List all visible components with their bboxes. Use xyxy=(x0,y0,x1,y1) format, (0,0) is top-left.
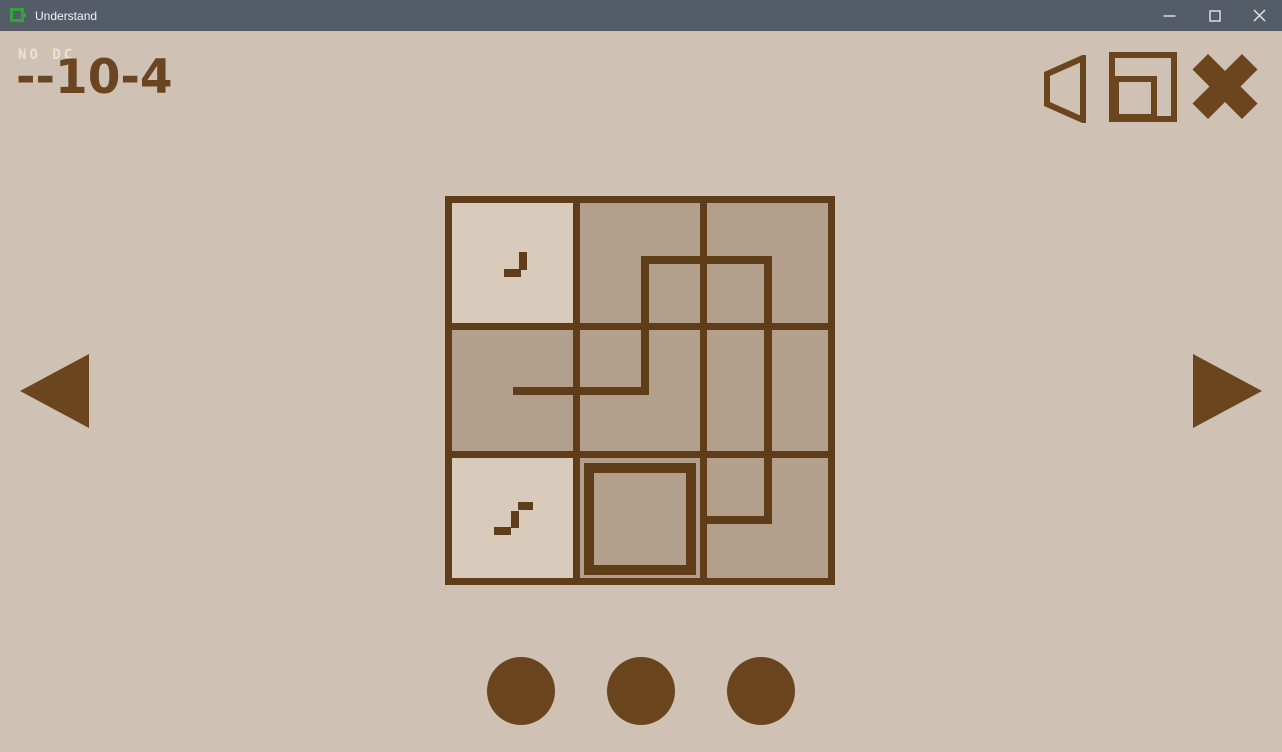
board-cell-r0c0[interactable] xyxy=(452,203,573,323)
close-icon xyxy=(1253,9,1266,22)
progress-dot-2 xyxy=(607,657,675,725)
next-level-button[interactable] xyxy=(1192,352,1264,430)
close-button[interactable] xyxy=(1237,0,1282,31)
board-cell-r0c2[interactable] xyxy=(707,203,828,323)
board-cell-r2c1[interactable] xyxy=(580,458,701,578)
app-icon xyxy=(9,7,26,24)
board-cell-r0c1[interactable] xyxy=(580,203,701,323)
window-mode-button[interactable] xyxy=(1109,52,1177,122)
progress-dot-1 xyxy=(487,657,555,725)
minimize-icon xyxy=(1163,9,1176,22)
board-cell-r2c2[interactable] xyxy=(707,458,828,578)
exit-button[interactable] xyxy=(1189,50,1261,123)
maximize-icon xyxy=(1209,10,1221,22)
window-controls xyxy=(1147,0,1282,31)
board-cell-r1c2[interactable] xyxy=(707,330,828,450)
board-cell-r1c1[interactable] xyxy=(580,330,701,450)
window-icon xyxy=(1109,52,1177,122)
window-title: Understand xyxy=(35,9,97,23)
prev-level-button[interactable] xyxy=(18,352,90,430)
left-arrow-icon xyxy=(18,352,90,430)
speaker-icon xyxy=(1044,55,1086,123)
board-cell-r2c0[interactable] xyxy=(452,458,573,578)
understand-logo-icon xyxy=(9,7,26,24)
minimize-button[interactable] xyxy=(1147,0,1192,31)
level-title: --10-4 xyxy=(16,50,173,105)
exit-x-icon xyxy=(1189,50,1261,123)
sound-button[interactable] xyxy=(1044,55,1086,123)
titlebar: Understand xyxy=(0,0,1282,31)
right-arrow-icon xyxy=(1192,352,1264,430)
board-cell-r1c0[interactable] xyxy=(452,330,573,450)
maximize-button[interactable] xyxy=(1192,0,1237,31)
progress-dot-3 xyxy=(727,657,795,725)
puzzle-board[interactable] xyxy=(445,196,835,585)
